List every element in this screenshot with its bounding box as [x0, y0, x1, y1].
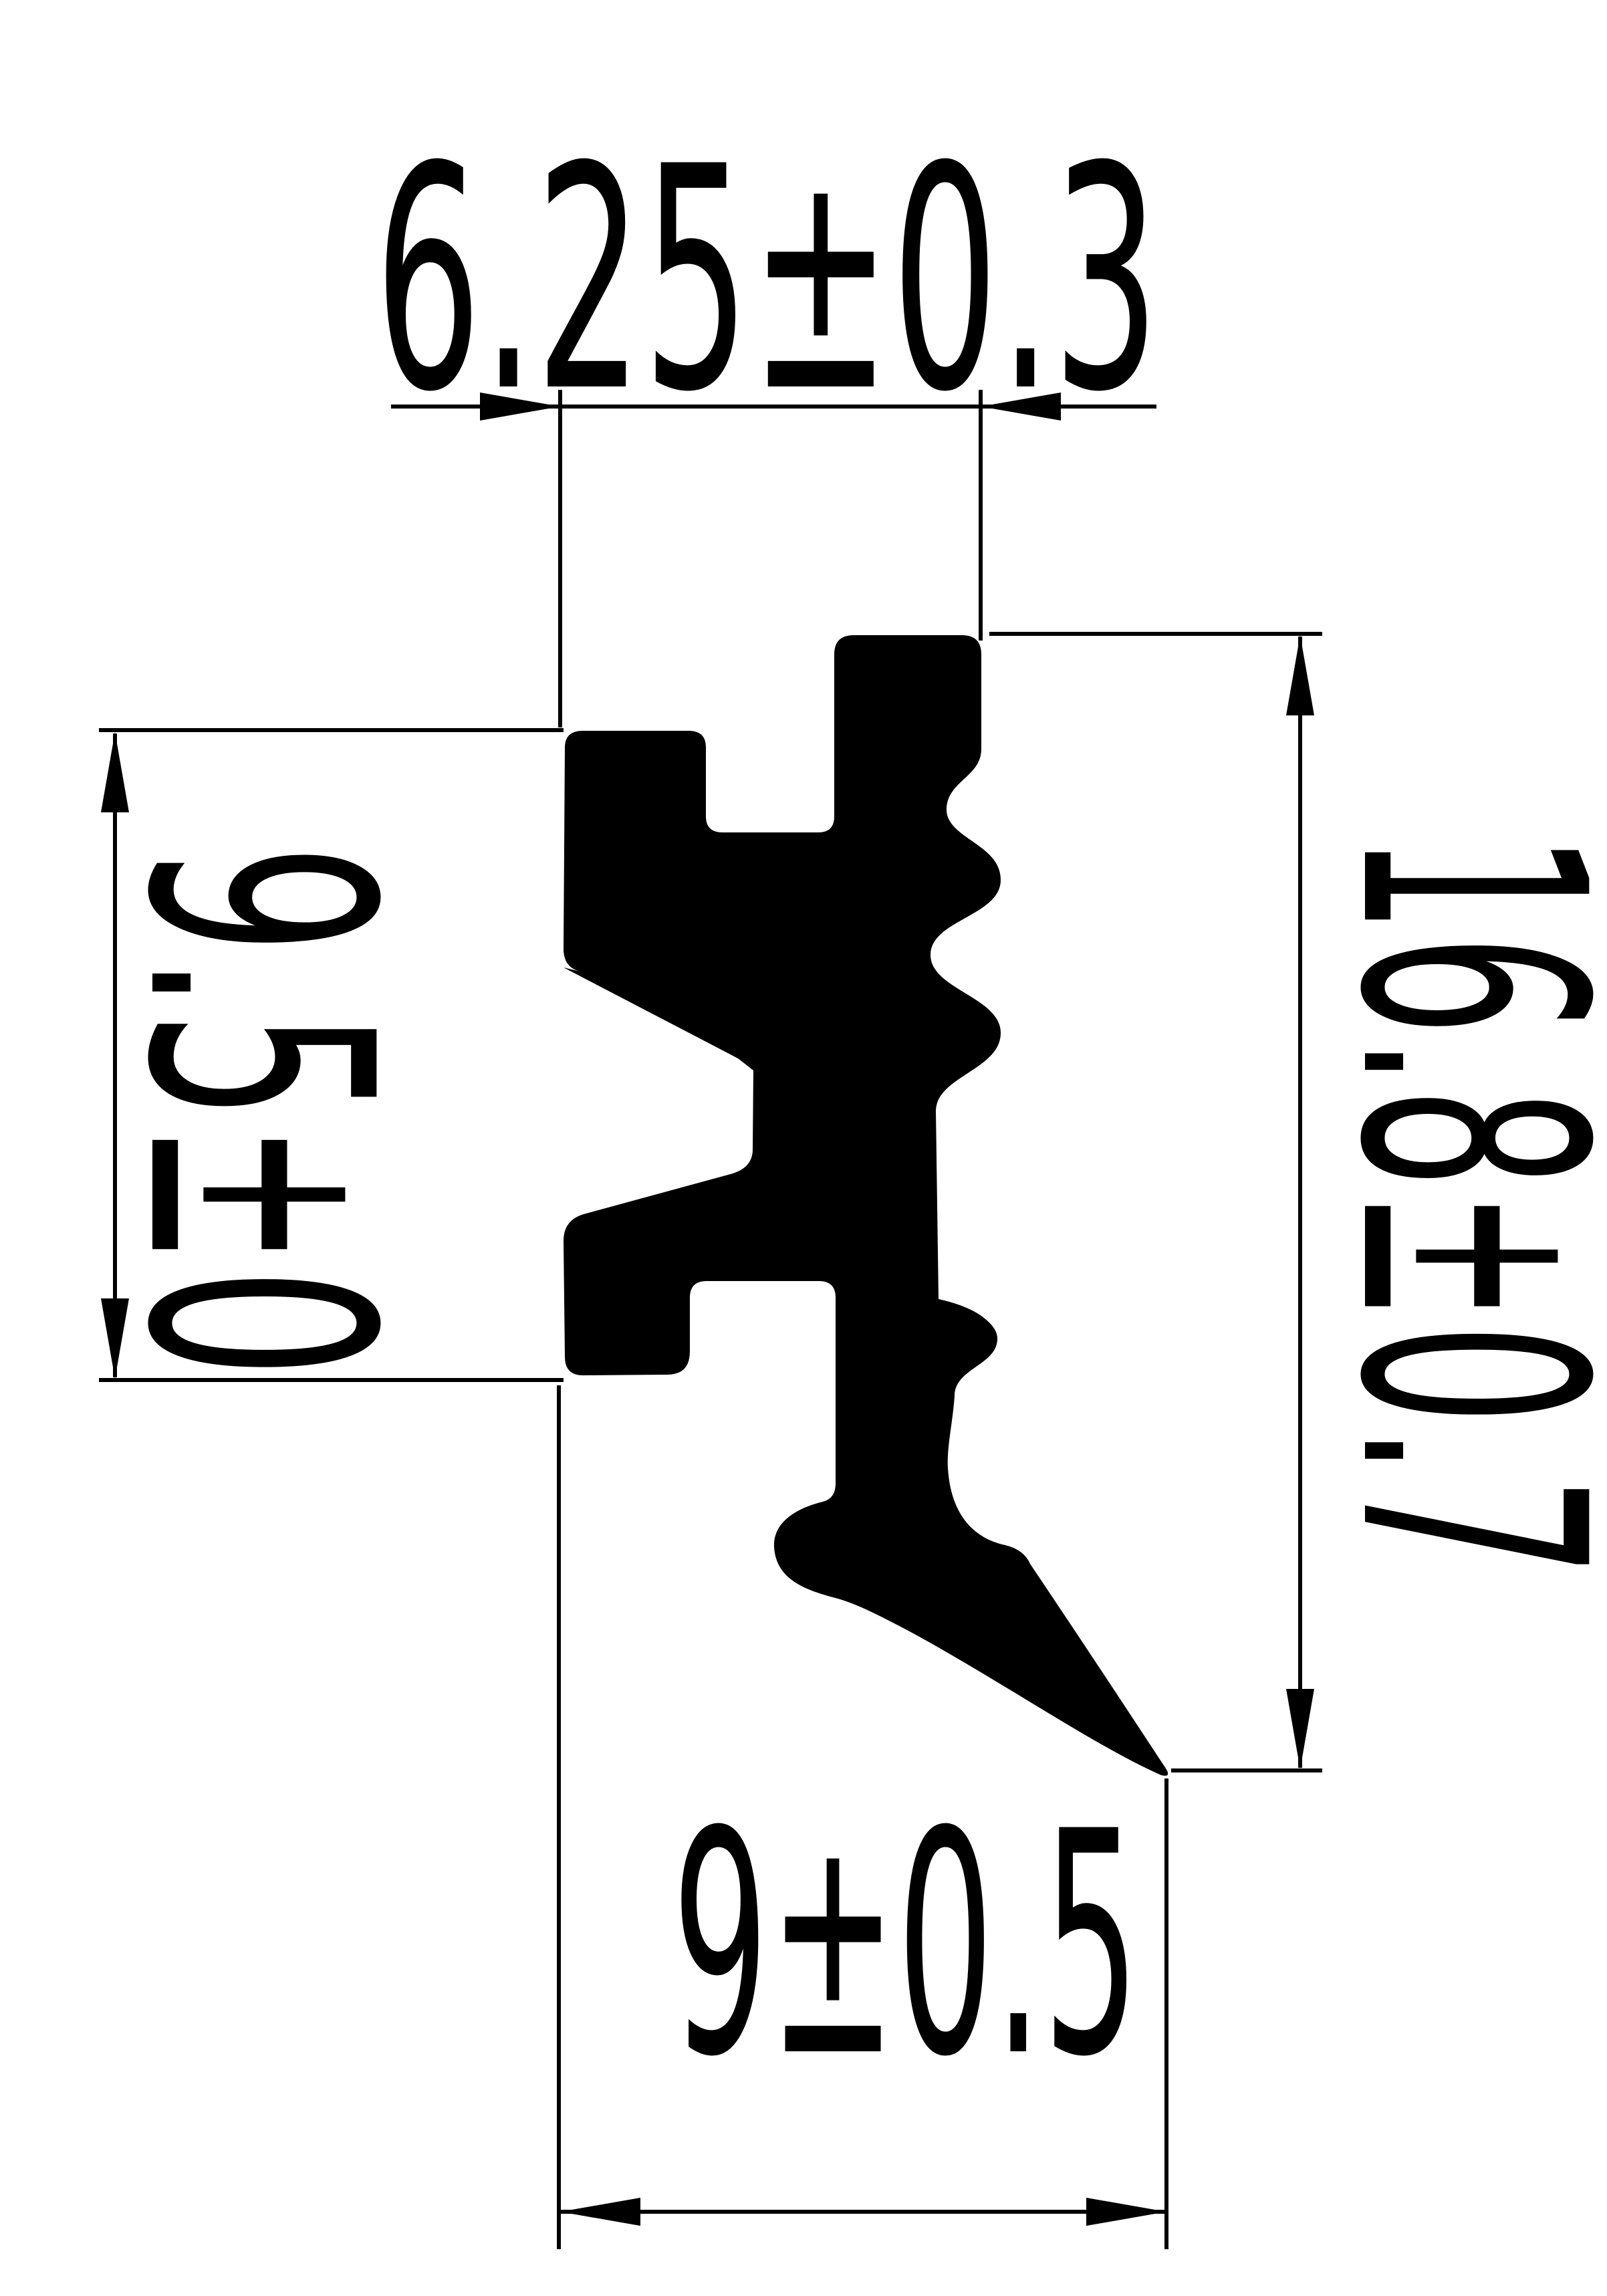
bottom-dim-arrow-left: [560, 2198, 640, 2226]
top-dim-label: 6.25±0.3: [374, 102, 1160, 459]
bottom-dim-arrow-right: [1086, 2198, 1166, 2226]
gasket-profile-drawing: 6.25±0.3 9.5±0 16.8±0.7 9±0.5: [0, 0, 1607, 2296]
profile-silhouette: [564, 635, 1168, 1776]
bottom-dim-label: 9±0.5: [672, 1766, 1140, 2124]
right-dim-label: 16.8±0.7: [1292, 832, 1607, 1578]
left-dim-label: 9.5±0: [80, 844, 437, 1379]
drawing-sheet: 6.25±0.3 9.5±0 16.8±0.7 9±0.5: [0, 0, 1607, 2296]
right-dim-arrow-bottom: [1286, 1689, 1314, 1769]
right-dim-arrow-top: [1286, 635, 1314, 715]
left-dim-arrow-top: [101, 732, 129, 812]
